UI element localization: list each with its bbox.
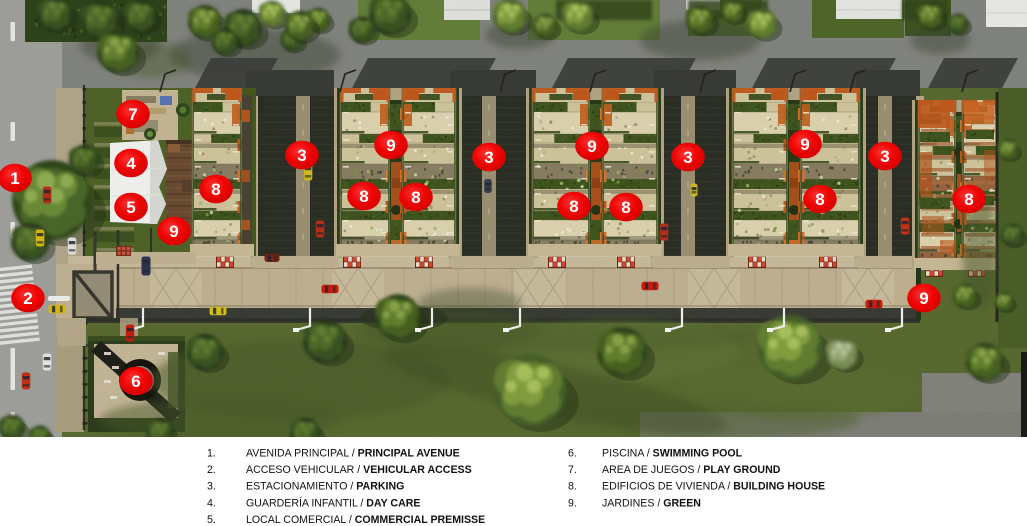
svg-text:ACCESO VEHICULAR / VEHICULAR A: ACCESO VEHICULAR / VEHICULAR ACCESS [246,464,472,476]
svg-text:8: 8 [411,188,420,207]
svg-text:AVENIDA PRINCIPAL / PRINCIPAL: AVENIDA PRINCIPAL / PRINCIPAL AVENUE [246,448,460,460]
svg-text:EDIFICIOS DE VIVIENDA / BUILDI: EDIFICIOS DE VIVIENDA / BUILDING HOUSE [602,481,825,493]
svg-text:8: 8 [569,197,578,216]
svg-text:3: 3 [880,147,889,166]
svg-text:9.: 9. [568,497,577,509]
svg-text:4.: 4. [207,497,216,509]
svg-text:LOCAL COMERCIAL / COMMERCIAL P: LOCAL COMERCIAL / COMMERCIAL PREMISSE [246,514,485,526]
svg-text:5.: 5. [207,514,216,526]
svg-text:9: 9 [386,136,395,155]
svg-text:8: 8 [359,187,368,206]
svg-text:8: 8 [964,190,973,209]
svg-text:2.: 2. [207,464,216,476]
svg-text:7: 7 [128,105,137,124]
svg-text:6.: 6. [568,448,577,460]
svg-text:9: 9 [169,222,178,241]
svg-text:PISCINA / SWIMMING POOL: PISCINA / SWIMMING POOL [602,448,743,460]
svg-text:9: 9 [587,137,596,156]
svg-text:ESTACIONAMIENTO / PARKING: ESTACIONAMIENTO / PARKING [246,481,404,493]
svg-text:2: 2 [23,289,32,308]
svg-text:9: 9 [800,135,809,154]
svg-text:9: 9 [919,289,928,308]
svg-text:7.: 7. [568,464,577,476]
svg-text:1: 1 [10,169,19,188]
svg-text:8: 8 [815,190,824,209]
svg-text:8.: 8. [568,481,577,493]
svg-text:1.: 1. [207,448,216,460]
svg-text:6: 6 [131,372,140,391]
svg-text:3: 3 [683,148,692,167]
svg-text:3: 3 [484,148,493,167]
svg-text:3.: 3. [207,481,216,493]
svg-text:AREA DE JUEGOS / PLAY GROUND: AREA DE JUEGOS / PLAY GROUND [602,464,781,476]
svg-text:4: 4 [126,154,136,173]
svg-text:GUARDERÍA INFANTIL / DAY CARE: GUARDERÍA INFANTIL / DAY CARE [246,496,420,509]
svg-text:3: 3 [297,146,306,165]
svg-text:5: 5 [126,198,135,217]
svg-text:8: 8 [211,180,220,199]
svg-text:JARDINES / GREEN: JARDINES / GREEN [602,497,701,509]
svg-text:8: 8 [621,198,630,217]
